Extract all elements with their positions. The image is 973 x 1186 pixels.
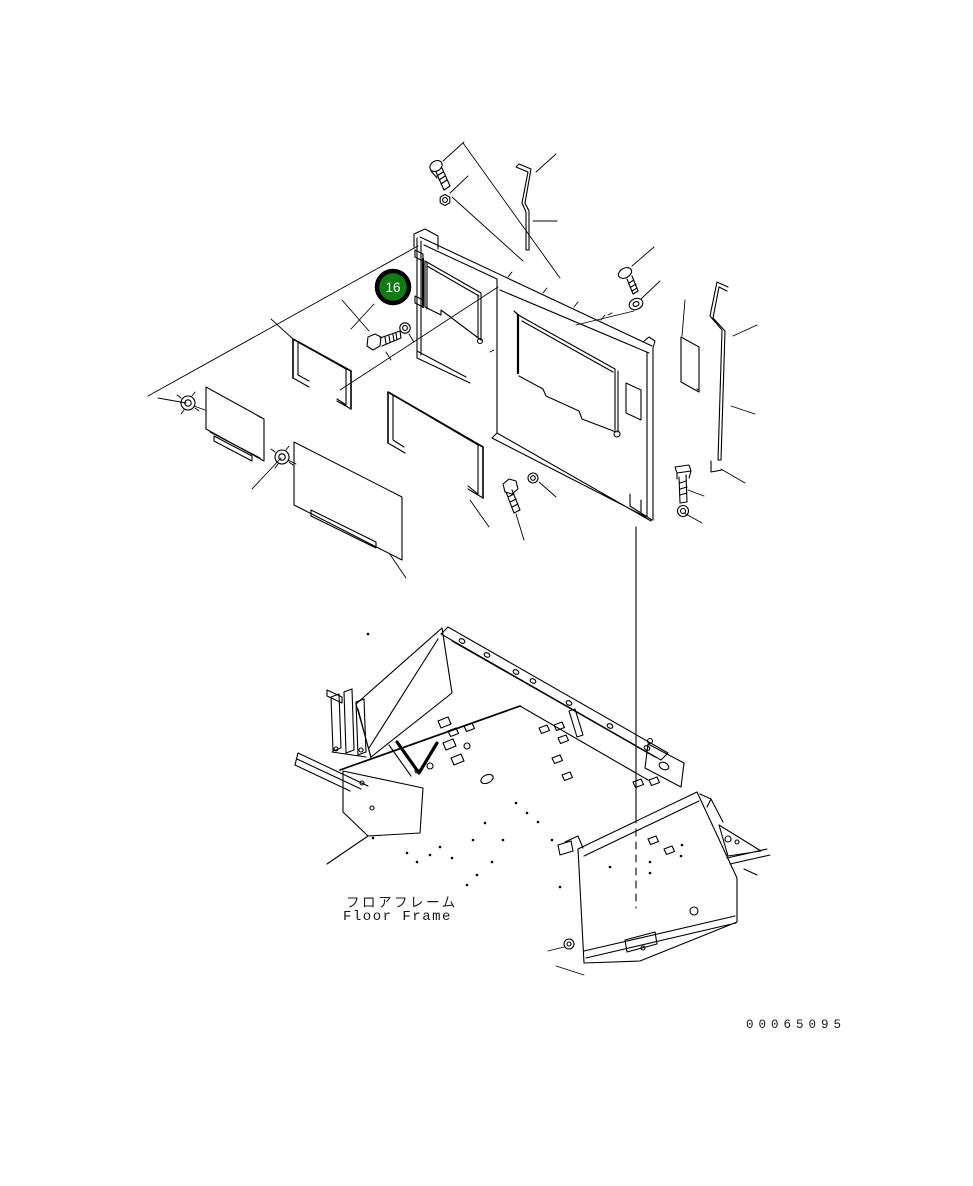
screw-head xyxy=(617,265,634,280)
rail-hole xyxy=(529,678,536,685)
dot xyxy=(372,837,375,840)
rail-hole xyxy=(483,652,490,659)
dot xyxy=(472,839,475,842)
rod-outline xyxy=(710,282,728,472)
panel-outline xyxy=(206,387,264,461)
dot xyxy=(484,822,487,825)
dot xyxy=(526,812,529,815)
floor-frame-label-en: Floor Frame xyxy=(343,909,452,925)
washer-inner xyxy=(403,326,408,331)
door-outline xyxy=(514,311,618,432)
panel-outline xyxy=(558,792,737,963)
screw-inner xyxy=(567,942,571,946)
screw-shank xyxy=(627,276,638,294)
frame-left-posts xyxy=(327,689,366,757)
frame-triangle-bracket xyxy=(719,825,770,875)
dot xyxy=(367,633,370,636)
right-bolt xyxy=(675,465,691,503)
dot xyxy=(537,821,540,824)
screw-leaders xyxy=(548,947,584,975)
rail-hole xyxy=(606,723,613,730)
plate-outline xyxy=(681,337,699,392)
panel-hole xyxy=(370,806,374,810)
washer-outer xyxy=(400,323,410,333)
bolt-shank xyxy=(380,331,401,346)
dot xyxy=(476,874,479,877)
dot xyxy=(491,861,494,864)
frame-left-rails xyxy=(295,753,368,791)
frame-outline xyxy=(388,392,483,498)
dot xyxy=(559,886,562,889)
dot xyxy=(406,852,409,855)
parts-diagram-page: 16 フロアフレーム Floor Frame 00065095 xyxy=(0,0,973,1186)
cover-panel-2 xyxy=(294,442,402,560)
panel-corner-hook xyxy=(630,494,652,520)
v-mark-echo xyxy=(389,745,411,776)
dot xyxy=(609,866,612,869)
panel-outline xyxy=(294,442,402,560)
knob-outer xyxy=(181,396,195,410)
dot xyxy=(502,839,505,842)
stay-rod-top xyxy=(516,164,531,250)
frame-lower-left-panel xyxy=(327,771,423,864)
rod-outline xyxy=(516,164,531,250)
door-outline xyxy=(425,261,481,340)
floor-frame-label-jp: フロアフレーム xyxy=(346,891,458,911)
screw-outer xyxy=(564,939,574,949)
washer-outer xyxy=(528,473,538,483)
drawing-number: 00065095 xyxy=(746,1018,846,1032)
flathead-screw xyxy=(617,265,638,294)
knob-outer xyxy=(275,450,289,464)
bolt-head xyxy=(428,158,444,173)
deck-edge-right xyxy=(520,706,648,780)
frame-inner xyxy=(388,395,483,498)
deck-lug xyxy=(464,743,470,749)
dot xyxy=(681,844,684,847)
dot xyxy=(649,861,652,864)
rail-lines xyxy=(441,627,668,760)
dot xyxy=(429,854,432,857)
dot xyxy=(416,861,419,864)
small-plate-right xyxy=(681,337,699,392)
dot xyxy=(551,839,554,842)
bracket-hole xyxy=(658,761,670,772)
dot xyxy=(515,802,518,805)
frame-bottom-screw xyxy=(548,939,584,975)
washer-outer xyxy=(678,506,689,517)
frame-tall-side-panel xyxy=(558,792,737,963)
frame-outline xyxy=(293,339,351,409)
leader-lines xyxy=(148,142,757,578)
bottom-bolt xyxy=(503,479,520,513)
washer-inner xyxy=(632,301,639,308)
panel-outline xyxy=(327,771,423,864)
rail-hole xyxy=(458,638,465,645)
deck-lug xyxy=(427,763,433,769)
panel-hole xyxy=(690,907,698,915)
exploded-view-drawing: 16 xyxy=(0,0,973,1186)
bolt-head xyxy=(367,334,381,350)
frame-top-rail xyxy=(441,627,668,760)
cover-panel-1 xyxy=(206,387,264,461)
bracket-outline xyxy=(719,825,770,875)
nut-hex xyxy=(440,195,450,206)
callout-balloon-16[interactable]: 16 xyxy=(377,271,409,303)
deck-hole xyxy=(479,773,494,786)
dot xyxy=(466,884,469,887)
right-washer xyxy=(678,506,689,517)
bolt-head xyxy=(503,479,518,494)
rail-hole xyxy=(512,669,519,676)
dot xyxy=(649,872,652,875)
deck-chips xyxy=(448,709,675,855)
deck-edge xyxy=(340,706,520,770)
frame-inner xyxy=(293,342,351,409)
panel-hinge-tabs xyxy=(415,250,423,307)
center-bolt xyxy=(367,331,401,350)
top-nut xyxy=(440,195,450,206)
dot xyxy=(439,846,442,849)
bolt-head xyxy=(675,465,691,479)
panel-small-plate xyxy=(626,383,641,420)
bracket-hole xyxy=(725,836,731,842)
center-washer xyxy=(400,323,410,333)
washer-inner xyxy=(681,509,686,514)
post-hole xyxy=(359,748,363,752)
knob-1 xyxy=(177,392,205,414)
top-bolt xyxy=(428,158,450,190)
channel-frame-1 xyxy=(293,339,351,409)
dot xyxy=(680,855,683,858)
channel-frame-2 xyxy=(388,392,483,498)
leader-line-set xyxy=(148,142,757,578)
deck-stubs xyxy=(438,717,464,765)
knob-inner xyxy=(279,454,285,460)
bottom-washer xyxy=(528,473,538,483)
balloon-label: 16 xyxy=(385,280,400,295)
posts xyxy=(327,689,366,757)
bolt-shank xyxy=(679,475,687,503)
dot xyxy=(451,857,454,860)
access-door-right xyxy=(514,311,620,437)
bracket-hole xyxy=(735,840,739,844)
stay-rod-right xyxy=(710,282,728,472)
washer-inner xyxy=(531,476,536,481)
nut-hole xyxy=(443,198,448,203)
frame-left-wing xyxy=(356,628,452,758)
door-foot xyxy=(614,431,620,437)
wing-outline xyxy=(356,628,452,758)
